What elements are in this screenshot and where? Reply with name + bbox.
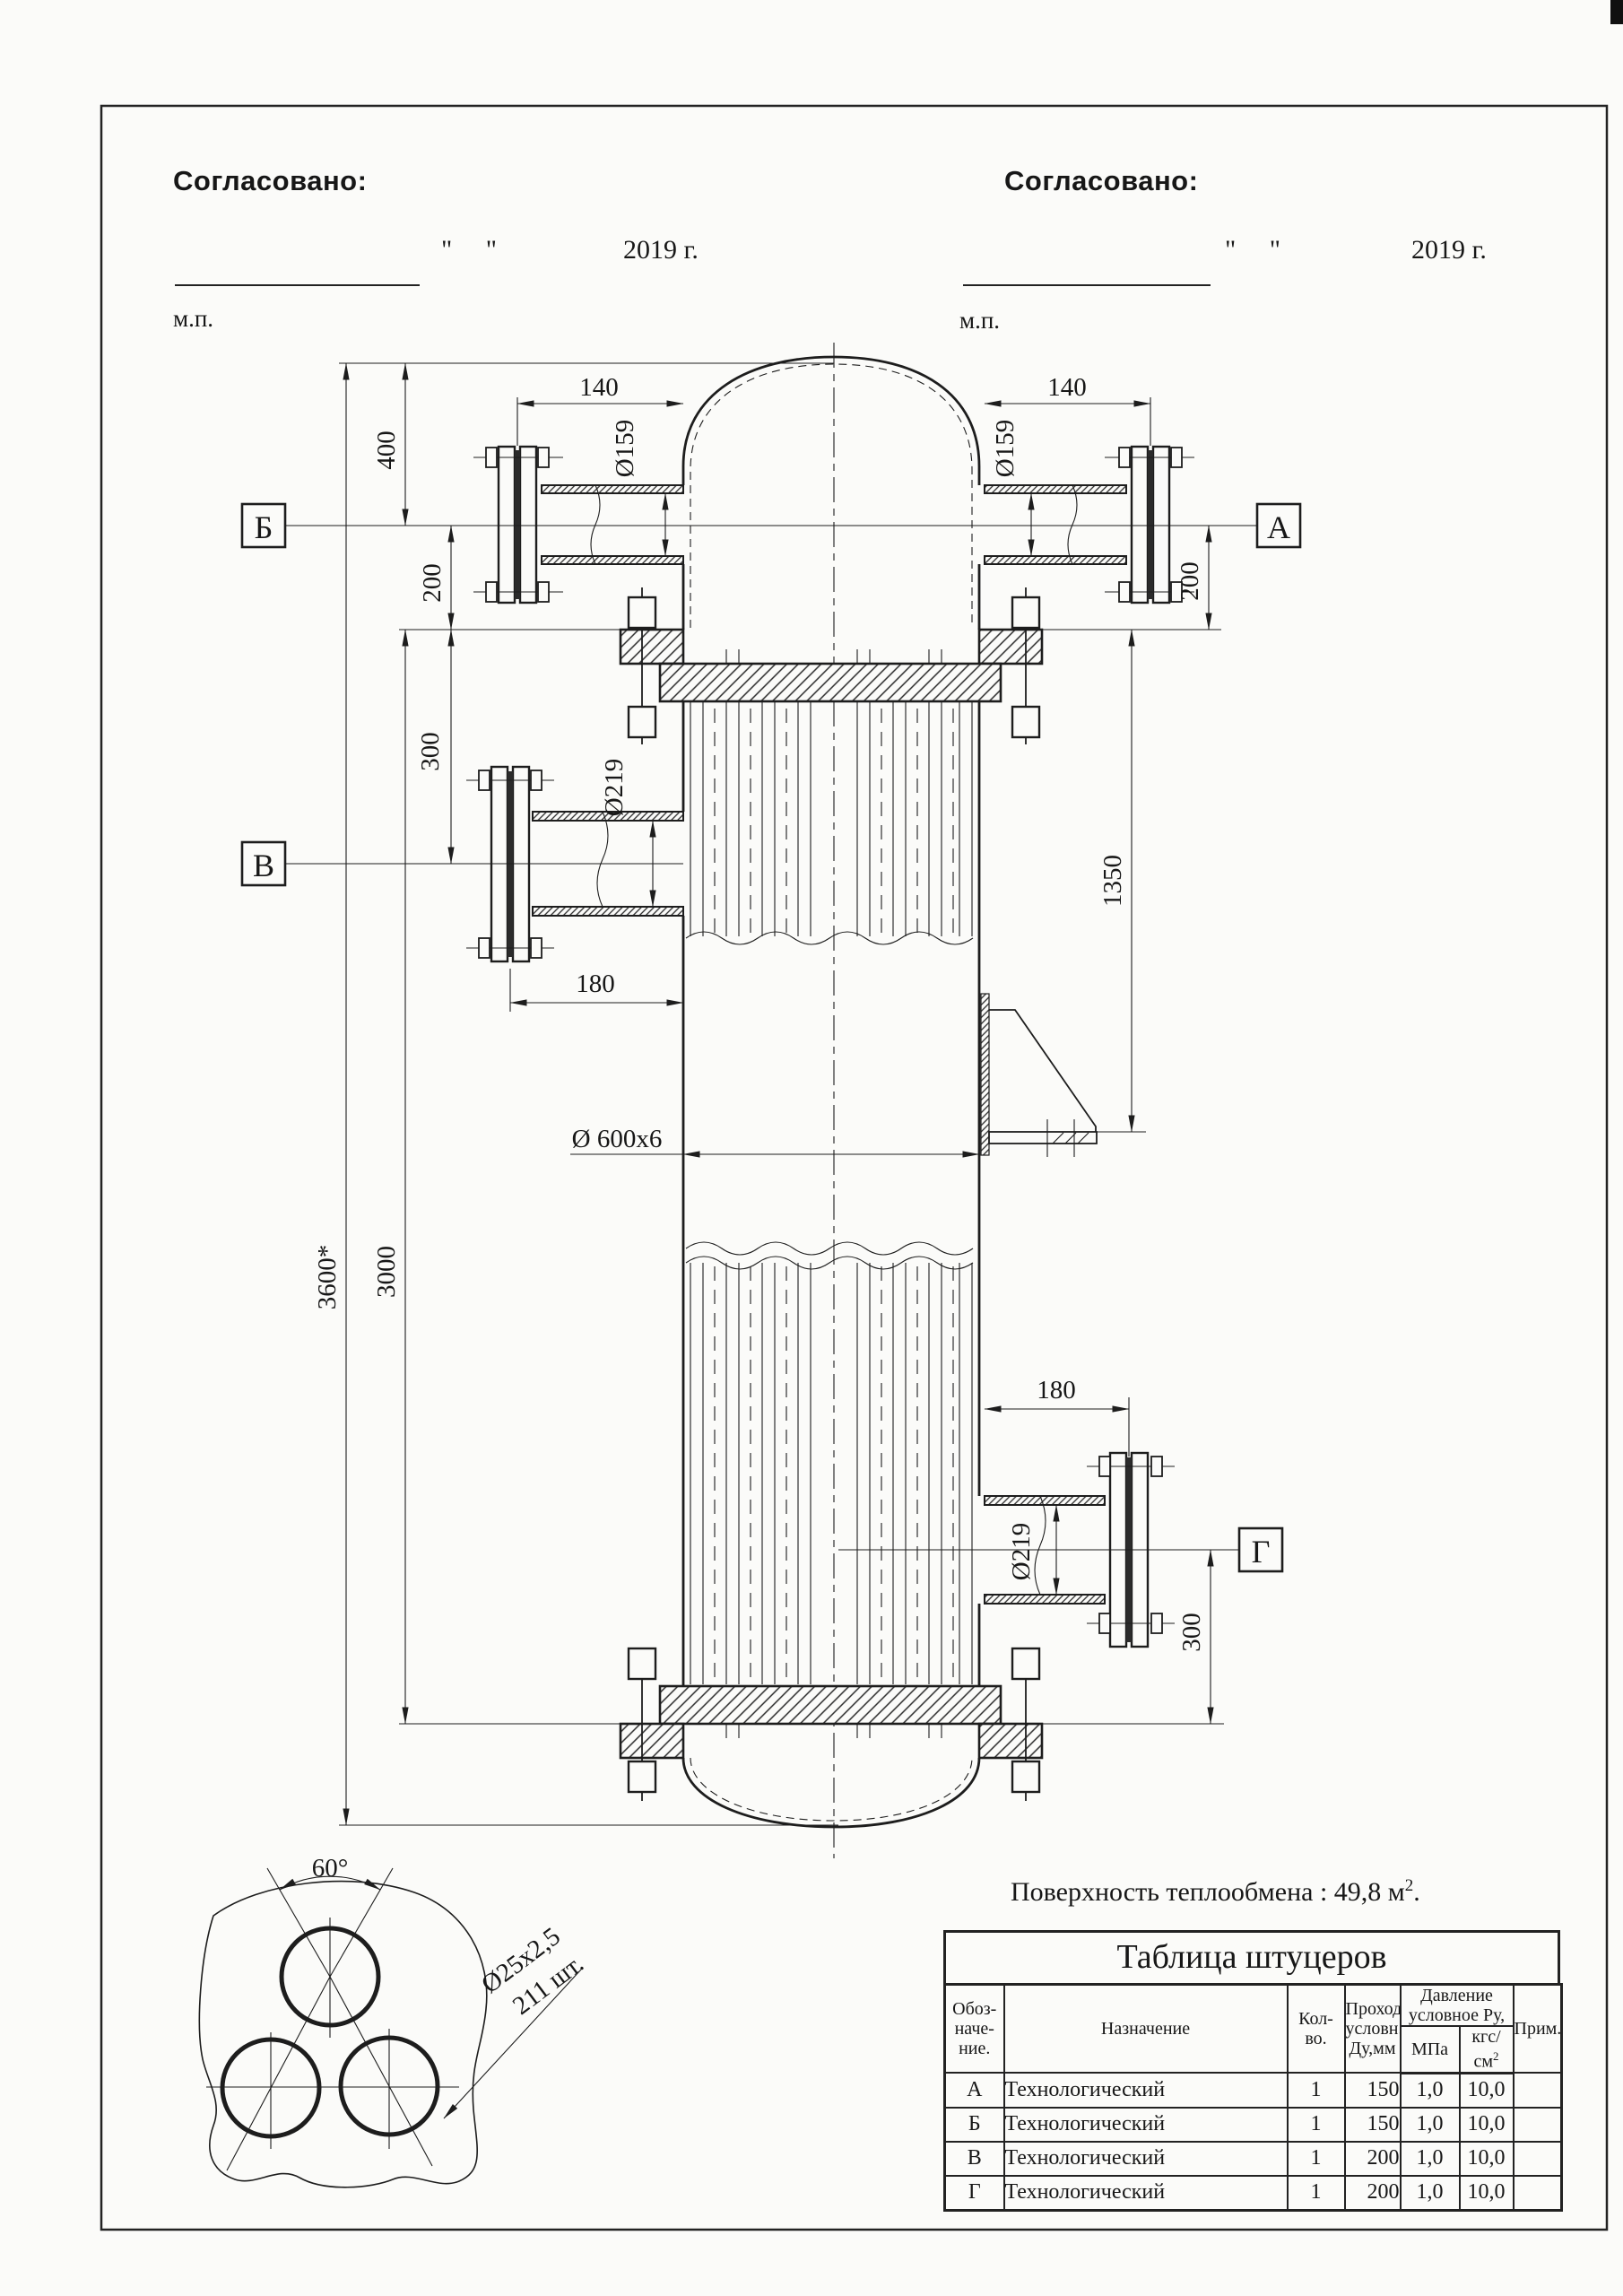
dim-3600: 3600* — [313, 1245, 342, 1310]
col-purpose: Назначение — [1004, 1985, 1288, 2074]
dim-180-left: 180 — [576, 970, 615, 998]
col-note: Прим. — [1514, 1985, 1562, 2074]
dim-159-right: Ø159 — [991, 420, 1020, 477]
vessel — [621, 343, 1097, 1858]
dim-219-top: Ø219 — [600, 759, 629, 816]
dim-200-right: 200 — [1176, 561, 1204, 601]
section-label-g: Г — [1252, 1534, 1271, 1570]
dim-140-right: 140 — [1047, 373, 1087, 402]
sheet-border — [101, 106, 1607, 2230]
col-bore: Проходусловн.Ду,мм — [1345, 1985, 1401, 2074]
table-row-g: Г Технологический 1 200 1,0 10,0 — [945, 2176, 1562, 2211]
nozzle-table-title: Таблица штуцеров — [943, 1930, 1560, 1983]
dim-400: 400 — [372, 430, 401, 470]
dim-1350: 1350 — [1098, 855, 1127, 907]
support-bracket — [981, 994, 1097, 1157]
nozzle-b — [473, 447, 683, 603]
dim-3000: 3000 — [372, 1246, 401, 1298]
dimension-lines — [346, 363, 1211, 1825]
dim-600x6: Ø 600x6 — [572, 1125, 663, 1153]
extension-lines — [339, 363, 1224, 1825]
dim-159-left: Ø159 — [611, 420, 639, 477]
drawing-sheet: Согласовано: " " 2019 г. м.п. Согласован… — [0, 0, 1623, 2296]
col-kgs: кгс/см2 — [1460, 2026, 1514, 2073]
dim-140-left: 140 — [579, 373, 619, 402]
col-designation: Обоз-наче-ние. — [945, 1985, 1004, 2074]
nozzle-table: Таблица штуцеров Обоз-наче-ние. Назначен… — [943, 1930, 1560, 2212]
col-mpa: МПа — [1401, 2026, 1460, 2073]
dim-219-bottom: Ø219 — [1007, 1523, 1036, 1580]
nozzle-table-grid: Обоз-наче-ние. Назначение Кол-во. Проход… — [943, 1983, 1563, 2212]
col-pressure: Давлениеусловное Ру, — [1401, 1985, 1514, 2027]
tube-layout-detail: 60° Ø25x2,5 211 шт. — [199, 1854, 588, 2187]
dim-180-right: 180 — [1037, 1376, 1076, 1405]
dim-60deg: 60° — [312, 1854, 349, 1883]
section-label-b: Б — [255, 509, 273, 545]
table-row-v: В Технологический 1 200 1,0 10,0 — [945, 2142, 1562, 2176]
dim-200-left: 200 — [418, 563, 447, 603]
section-label-a: А — [1267, 509, 1290, 545]
dim-300-left: 300 — [416, 732, 445, 771]
section-label-v: В — [253, 848, 274, 883]
table-row-a: А Технологический 1 150 1,0 10,0 — [945, 2073, 1562, 2108]
table-row-b: Б Технологический 1 150 1,0 10,0 — [945, 2108, 1562, 2142]
scan-mark — [1610, 0, 1623, 24]
dim-300-right: 300 — [1177, 1613, 1206, 1652]
col-qty: Кол-во. — [1288, 1985, 1345, 2074]
tube-bundle-lower — [690, 1263, 972, 1738]
